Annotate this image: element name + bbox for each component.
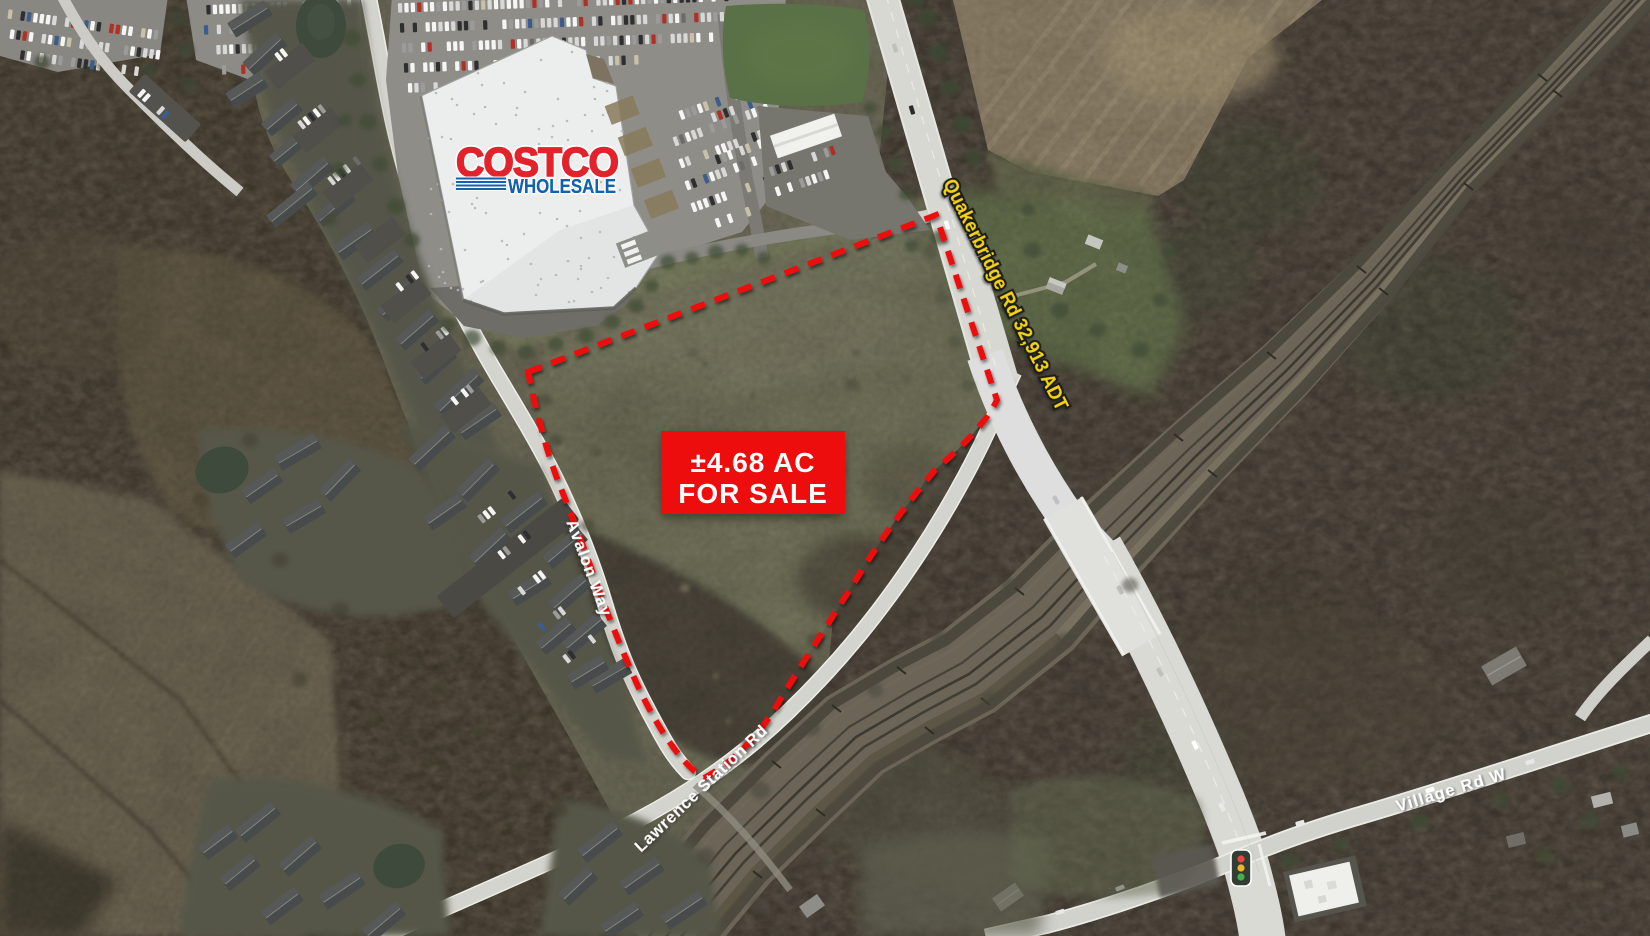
svg-text:±4.68 AC: ±4.68 AC (690, 447, 815, 478)
svg-text:FOR SALE: FOR SALE (678, 478, 828, 509)
svg-text:WHOLESALE: WHOLESALE (508, 176, 616, 198)
